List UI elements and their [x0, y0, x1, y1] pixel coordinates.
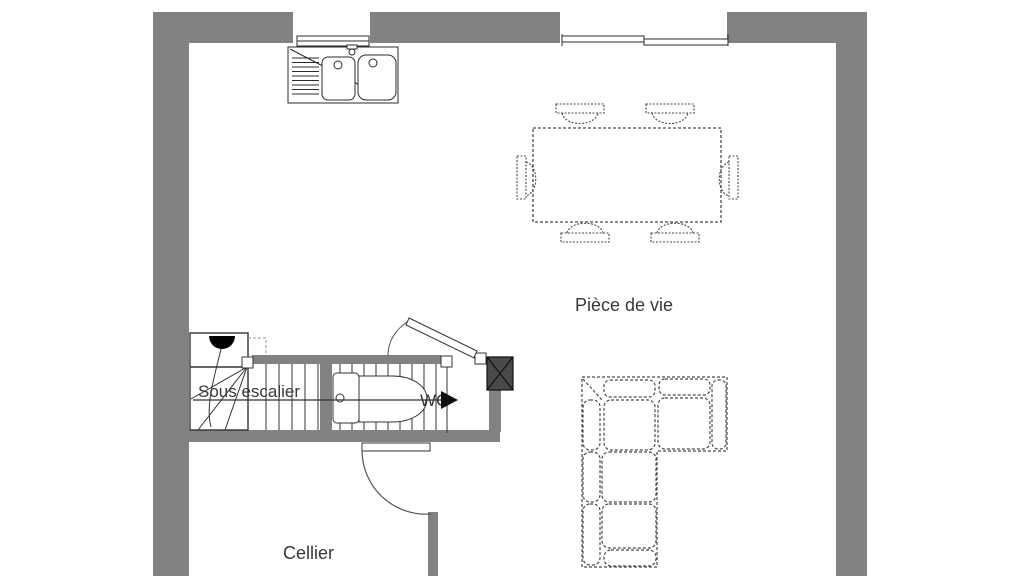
room-label-cellar: Cellier	[283, 543, 334, 563]
room-label-under-stairs: Sous escalier	[198, 382, 300, 401]
toilet-icon	[333, 373, 427, 423]
wc-right-wall	[489, 387, 501, 432]
floor-plan: Pièce de vie Sous escalier WC Cellier	[0, 0, 1024, 576]
corner-sofa-icon	[582, 377, 727, 567]
door-hinge-post	[475, 353, 486, 364]
chair-right	[719, 156, 738, 199]
kitchen-window	[297, 36, 369, 46]
wall-top-right	[727, 12, 867, 43]
stair-wc-partition	[320, 355, 332, 442]
newel-post	[242, 357, 253, 368]
stair-bottom-wall	[153, 430, 500, 442]
wc-door-icon	[388, 318, 477, 358]
overhead-dashed-line	[248, 338, 266, 354]
room-label-living: Pièce de vie	[575, 295, 673, 315]
living-sliding-window	[562, 34, 728, 46]
chair-top-1	[556, 104, 604, 124]
chair-left	[517, 156, 536, 199]
chair-top-2	[646, 104, 694, 124]
chair-bottom-2	[651, 223, 699, 242]
exterior-walls	[153, 12, 867, 576]
cellar-right-wall	[428, 512, 438, 576]
floor-plan-drawing: Pièce de vie Sous escalier WC Cellier	[0, 0, 1024, 576]
stair-end-post	[441, 356, 452, 367]
stair-top-wall	[252, 355, 441, 364]
dining-table-icon	[533, 128, 721, 222]
stair-direction-arrowhead	[441, 391, 458, 409]
kitchen-sink-icon	[288, 45, 398, 103]
cellar-door-icon	[362, 443, 431, 514]
duct-shaft-icon	[487, 357, 513, 390]
wall-top-mid	[370, 12, 560, 43]
chair-bottom-1	[561, 223, 609, 242]
wall-right	[836, 43, 867, 576]
wall-left	[153, 12, 189, 576]
